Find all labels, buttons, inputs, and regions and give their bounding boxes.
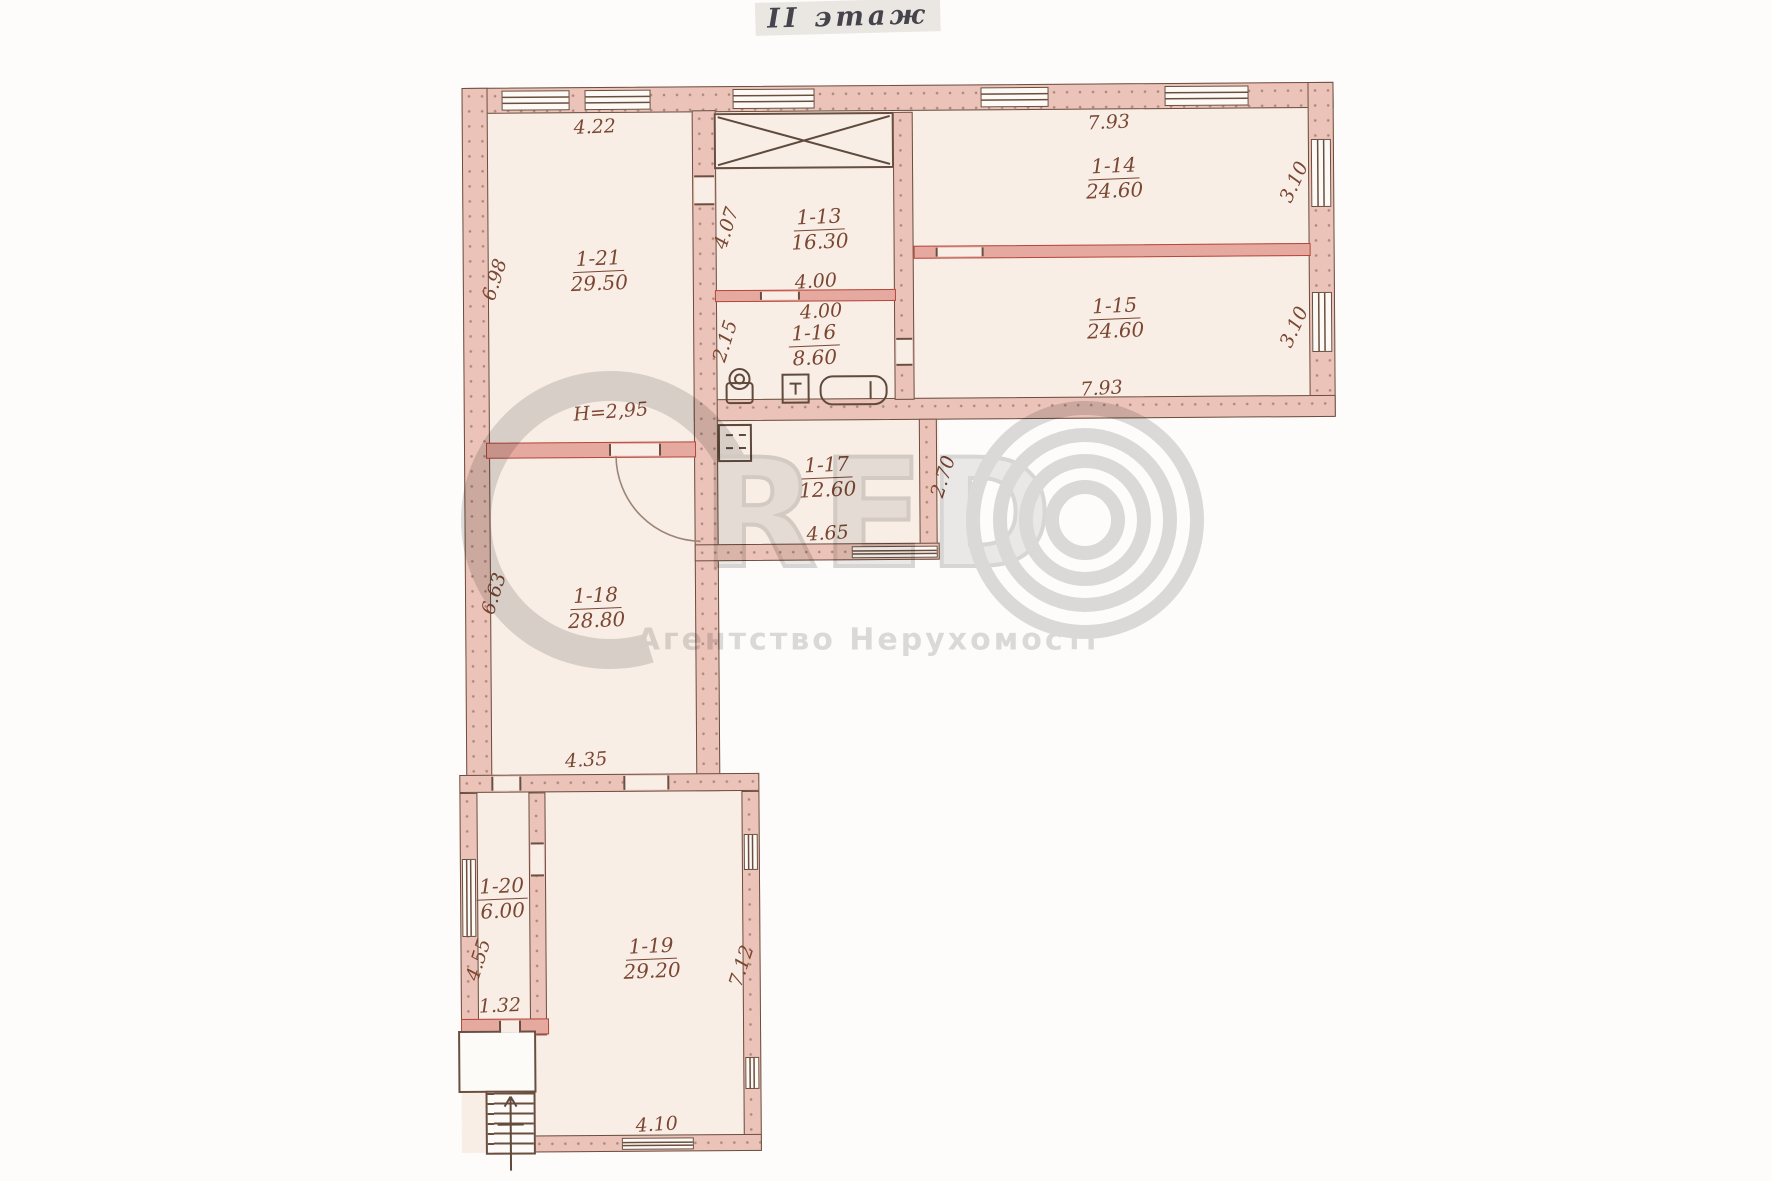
room-area: 28.80 (568, 607, 626, 633)
door-opening-1-20-top (491, 777, 521, 791)
wall-exterior-south-main (694, 395, 1336, 421)
window-1-20-left (462, 859, 477, 937)
floor-plan-drawing: 1-21 29.50 1-13 16.30 1-14 24.60 1-15 24… (0, 0, 1772, 1181)
room-area: 12.60 (799, 476, 857, 502)
window-1-17-bottom (852, 546, 938, 559)
room-number: 1-14 (1088, 153, 1140, 180)
room-number: 1-17 (801, 452, 853, 479)
window-top-5 (1164, 85, 1248, 106)
dimension-top-1-14: 7.93 (1087, 111, 1130, 135)
room-label-1-21: 1-21 29.50 (569, 246, 628, 296)
door-opening-1-21-1-18 (609, 444, 661, 456)
window-top-3 (732, 88, 814, 109)
room-label-1-15: 1-15 24.60 (1085, 293, 1144, 343)
window-top-4 (980, 87, 1048, 107)
window-right-1 (1311, 139, 1331, 207)
dimension-width-1-16: 4.00 (799, 299, 843, 323)
window-top-2 (584, 90, 650, 110)
room-number: 1-15 (1089, 293, 1141, 320)
room-label-1-13: 1-13 16.30 (790, 204, 849, 254)
room-area: 24.60 (1086, 317, 1144, 343)
room-area: 29.20 (623, 957, 681, 983)
wall-divider-1-20-1-19 (528, 792, 547, 1035)
room-area: 6.00 (480, 898, 525, 924)
door-opening-1-16-1-15 (896, 338, 912, 366)
door-opening-1-13-1-16 (760, 292, 800, 300)
room-number: 1-21 (572, 246, 624, 273)
dimension-bottom-1-19: 4.10 (635, 1112, 679, 1136)
window-wing-bottom (622, 1137, 694, 1150)
stair-shaft-box (714, 112, 894, 169)
door-opening-stairhall-1-21 (694, 175, 714, 205)
room-number: 1-18 (570, 583, 622, 610)
window-wing-right-1 (744, 834, 758, 870)
door-opening-1-20-1-19 (531, 842, 544, 876)
room-label-1-14: 1-14 24.60 (1085, 153, 1144, 203)
room-number: 1-16 (788, 320, 840, 347)
dimension-bottom-1-18: 4.35 (564, 748, 608, 772)
room-area: 8.60 (792, 345, 837, 371)
wall-exterior-left (461, 88, 492, 791)
room-label-1-16: 1-16 8.60 (788, 320, 841, 370)
dimension-bottom-1-20: 1.32 (478, 994, 521, 1018)
room-number: 1-19 (625, 934, 677, 961)
dimension-width-1-13: 4.00 (794, 269, 838, 293)
door-opening-1-19-top (623, 776, 669, 790)
dimension-bottom-1-17: 4.65 (806, 521, 850, 545)
room-label-1-18: 1-18 28.80 (567, 583, 626, 633)
window-right-2 (1312, 292, 1332, 352)
dimension-top-1-21: 4.22 (573, 115, 616, 139)
scanned-floor-plan-page: II этаж (0, 0, 1772, 1181)
wall-divider-1-21-1-18 (486, 441, 696, 458)
room-area: 16.30 (791, 228, 849, 254)
room-label-1-20: 1-20 6.00 (476, 874, 529, 924)
door-opening-1-20-bottom (499, 1021, 521, 1033)
stair-landing-box (458, 1030, 536, 1093)
room-label-1-19: 1-19 29.20 (622, 933, 681, 983)
staircase-steps (485, 1090, 535, 1154)
dimension-bottom-1-15: 7.93 (1080, 376, 1124, 400)
room-label-1-17: 1-17 12.60 (798, 452, 857, 502)
room-number: 1-20 (476, 874, 528, 901)
window-top-1 (502, 90, 570, 110)
room-area: 29.50 (570, 270, 628, 296)
wall-exterior-right (1307, 82, 1335, 416)
window-wing-right-2 (745, 1057, 759, 1089)
room-number: 1-13 (793, 204, 845, 231)
door-opening-1-14-1-15 (936, 247, 984, 256)
room-area: 24.60 (1086, 177, 1144, 203)
